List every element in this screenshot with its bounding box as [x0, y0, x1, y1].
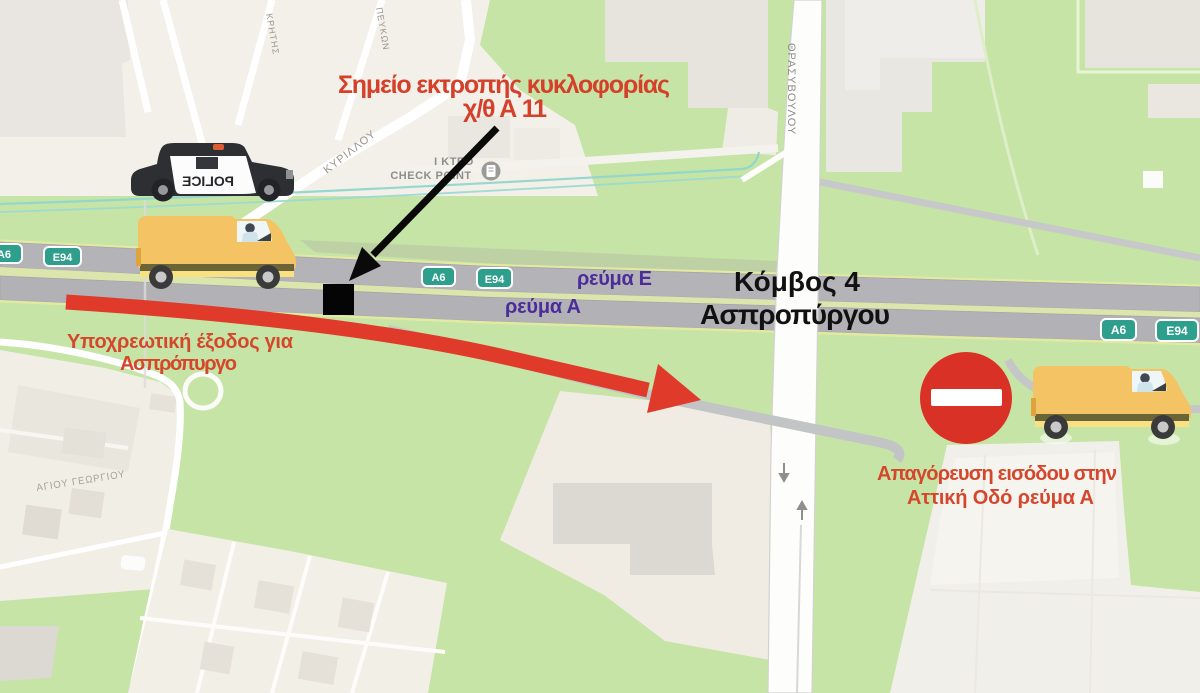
svg-text:POLICE: POLICE [182, 173, 234, 189]
svg-text:Ε94: Ε94 [485, 274, 505, 286]
svg-text:ρεύμα Ε: ρεύμα Ε [577, 268, 652, 290]
svg-text:Α6: Α6 [1111, 323, 1127, 337]
svg-text:Ε94: Ε94 [53, 252, 73, 264]
svg-text:Ε94: Ε94 [1166, 324, 1188, 338]
svg-text:Υποχρεωτική έξοδος για: Υποχρεωτική έξοδος για [67, 331, 294, 353]
svg-text:CHECK POINT: CHECK POINT [390, 170, 471, 182]
svg-text:Κόμβος 4: Κόμβος 4 [734, 266, 860, 297]
svg-text:χ/θ Α 11: χ/θ Α 11 [463, 95, 547, 123]
svg-text:ΘΡΑΣΥΒΟΥΛΟΥ: ΘΡΑΣΥΒΟΥΛΟΥ [785, 43, 797, 135]
svg-text:Ασπρόπυργο: Ασπρόπυργο [120, 353, 237, 375]
svg-text:Ασπροπύργου: Ασπροπύργου [700, 299, 890, 330]
svg-text:Αττική Οδό ρεύμα Α: Αττική Οδό ρεύμα Α [907, 487, 1094, 509]
svg-text:Α6: Α6 [431, 272, 445, 284]
svg-text:Α6: Α6 [0, 249, 11, 261]
svg-text:ρεύμα Α: ρεύμα Α [505, 296, 581, 318]
svg-text:Απαγόρευση εισόδου στην: Απαγόρευση εισόδου στην [877, 463, 1117, 485]
